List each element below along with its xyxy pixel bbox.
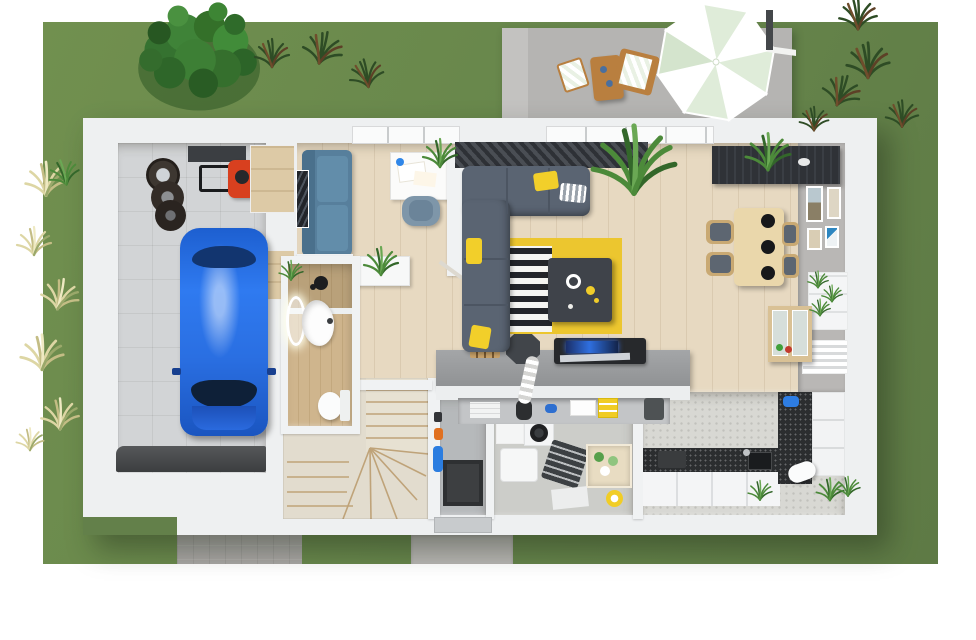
parasol bbox=[636, 0, 796, 137]
hall-shelf-plant bbox=[279, 261, 303, 281]
sideboard-plant bbox=[746, 134, 790, 170]
parasol-canopy bbox=[652, 0, 780, 126]
parasol-post bbox=[766, 10, 773, 50]
vegetation-layer bbox=[0, 0, 976, 640]
large-tree bbox=[138, 2, 260, 110]
floor-plan-scene bbox=[0, 0, 976, 640]
console-plant bbox=[364, 247, 398, 275]
desk-plant bbox=[423, 139, 457, 167]
